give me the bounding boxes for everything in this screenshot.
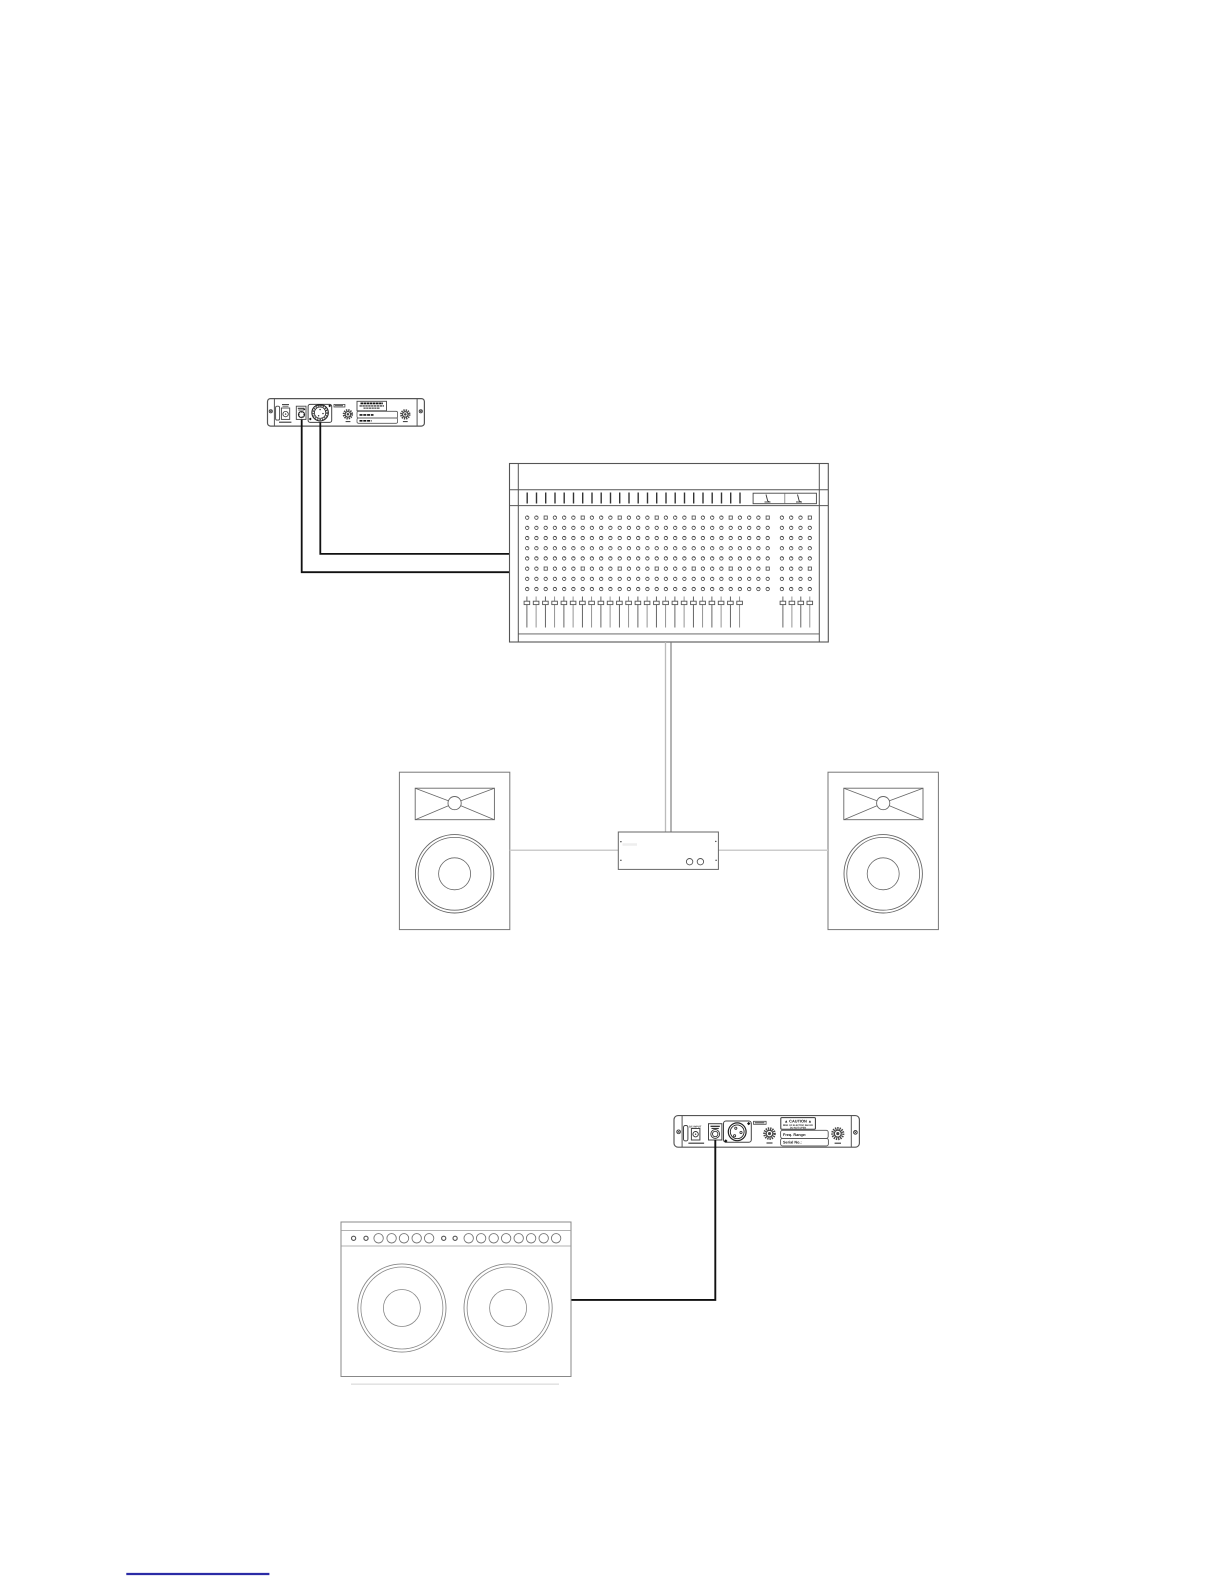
- svg-text:Freq. Range:: Freq. Range:: [783, 1133, 806, 1137]
- svg-text:▲ CAUTION ▲: ▲ CAUTION ▲: [784, 1119, 812, 1124]
- svg-text:DO NOT OPEN: DO NOT OPEN: [790, 1126, 806, 1129]
- svg-text:Serial No.:: Serial No.:: [783, 1141, 802, 1145]
